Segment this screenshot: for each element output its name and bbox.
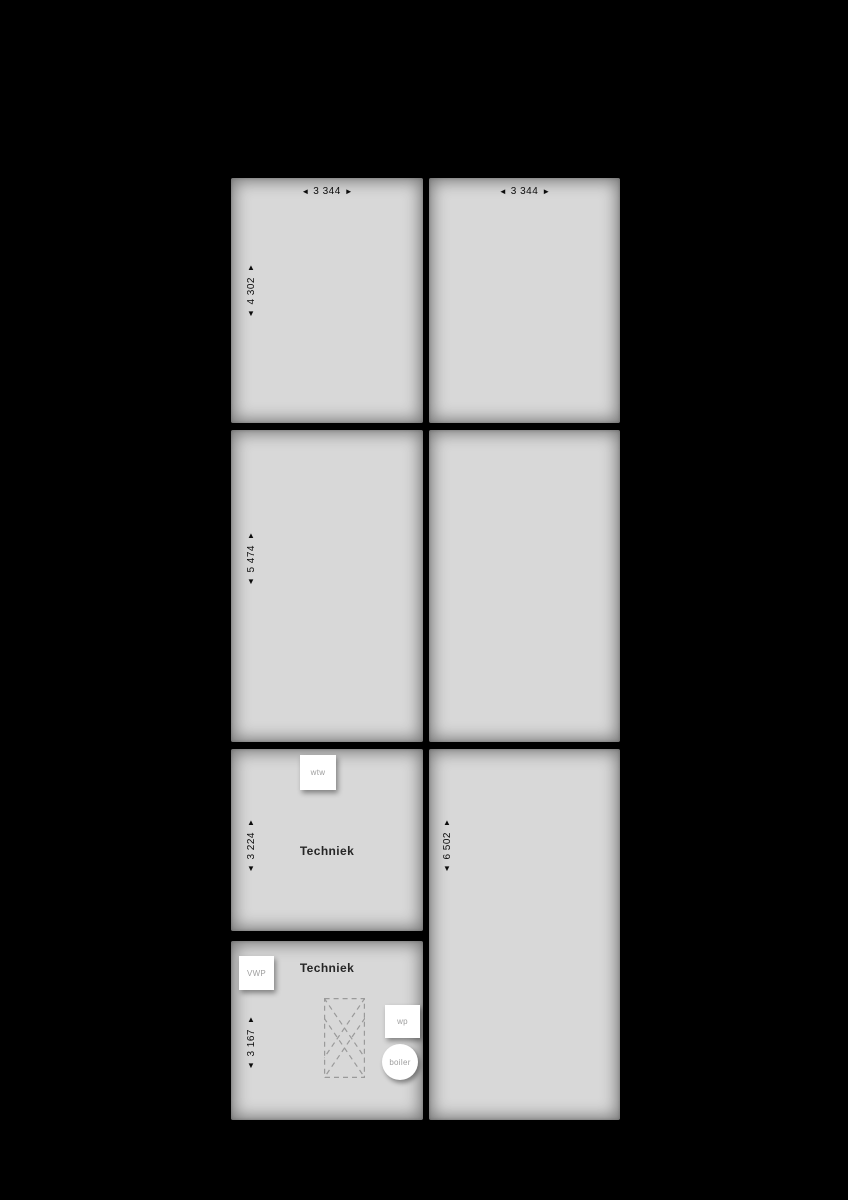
dimension-height-techniek-lower: ▲ 3 167 ▼ [241,1016,261,1070]
room-label-techniek-upper: Techniek [231,844,423,858]
wp-label: wp [397,1017,408,1026]
arrow-down-icon: ▼ [247,1062,255,1070]
dimension-height-mid-left: ▲ 5 474 ▼ [241,532,261,586]
arrow-up-icon: ▲ [443,819,451,827]
room-top-left: ◄ 3 344 ► ▲ 4 302 ▼ [231,178,423,423]
dimension-value: 5 474 [246,545,257,573]
arrow-up-icon: ▲ [247,264,255,272]
vwp-label: VWP [247,969,266,978]
room-mid-right [429,430,620,742]
vwp-unit: VWP [239,956,274,990]
wtw-label: wtw [311,768,326,777]
arrow-up-icon: ▲ [247,1016,255,1024]
dimension-width-top-right: ◄ 3 344 ► [429,186,620,197]
dimension-value: 4 302 [246,277,257,305]
boiler-unit: boiler [382,1044,418,1080]
boiler-label: boiler [389,1058,410,1067]
wtw-unit: wtw [300,755,336,790]
room-techniek-lower: Techniek VWP ▲ 3 167 ▼ wp [231,941,423,1120]
room-top-right: ◄ 3 344 ► [429,178,620,423]
dimension-value: 3 344 [511,186,539,197]
room-techniek-upper: wtw ▲ 3 224 ▼ Techniek [231,749,423,931]
shaft-dashed-symbol [324,998,365,1078]
arrow-down-icon: ▼ [247,865,255,873]
floor-plan: ◄ 3 344 ► ▲ 4 302 ▼ ◄ 3 344 ► ▲ 5 474 ▼ … [0,0,848,1200]
dimension-width-top-left: ◄ 3 344 ► [231,186,423,197]
arrow-right-icon: ► [542,188,550,196]
room-mid-left: ▲ 5 474 ▼ [231,430,423,742]
room-right-tall: ▲ 6 502 ▼ [429,749,620,1120]
dimension-value: 6 502 [442,832,453,860]
arrow-down-icon: ▼ [247,578,255,586]
dimension-value: 3 344 [313,186,341,197]
arrow-right-icon: ► [345,188,353,196]
arrow-down-icon: ▼ [443,865,451,873]
arrow-up-icon: ▲ [247,819,255,827]
dimension-height-top-left: ▲ 4 302 ▼ [241,264,261,318]
arrow-down-icon: ▼ [247,310,255,318]
arrow-up-icon: ▲ [247,532,255,540]
dimension-height-right-tall: ▲ 6 502 ▼ [437,819,457,873]
dimension-value: 3 167 [246,1029,257,1057]
wp-unit: wp [385,1005,420,1038]
arrow-left-icon: ◄ [301,188,309,196]
arrow-left-icon: ◄ [499,188,507,196]
